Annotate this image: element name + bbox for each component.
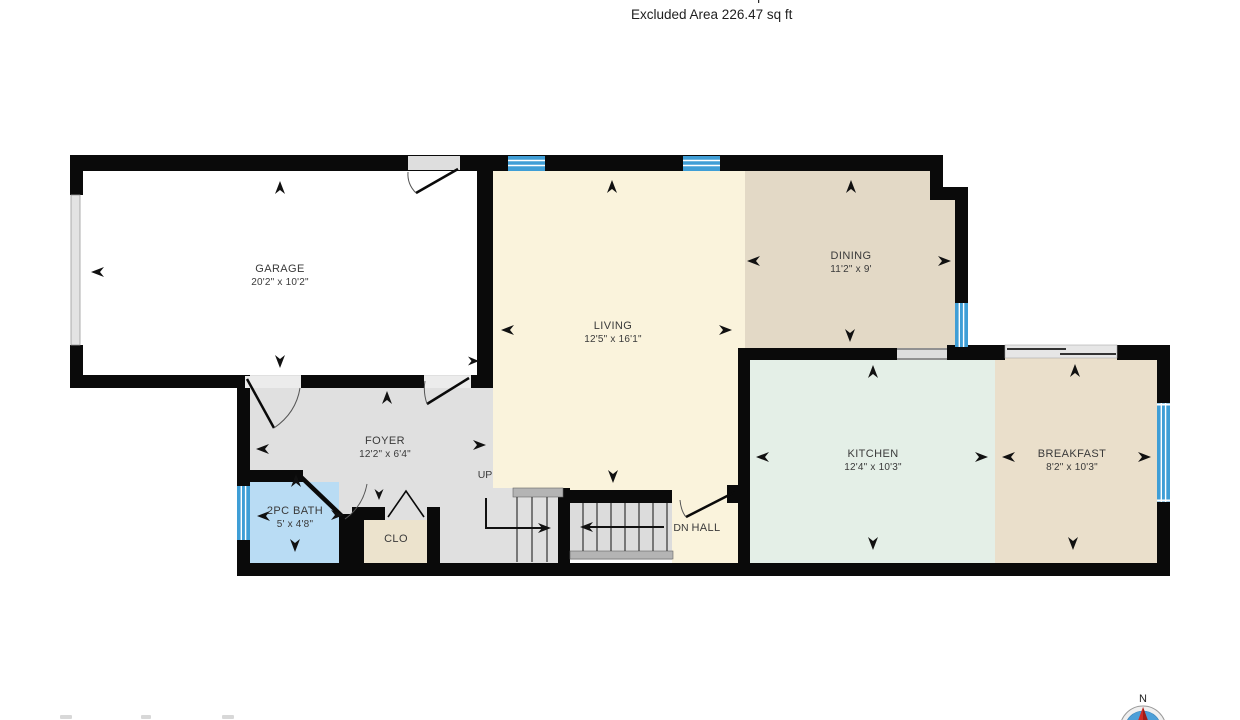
compass-north-label: N bbox=[1139, 693, 1147, 705]
foyer-dims: 12'2" x 6'4" bbox=[359, 449, 411, 460]
living-window bbox=[683, 156, 720, 171]
bath-dims: 5' x 4'8" bbox=[277, 519, 314, 530]
hall-label: HALL bbox=[691, 522, 720, 534]
foyer-label: FOYER bbox=[365, 435, 405, 447]
breakfast-label: BREAKFAST bbox=[1038, 448, 1106, 460]
dining-label: DINING bbox=[831, 250, 872, 262]
dining-dims: 11'2" x 9' bbox=[830, 264, 871, 275]
floor-plan-page: Interior Area 672.8 sq ft Excluded Area … bbox=[0, 0, 1240, 720]
living-label: LIVING bbox=[594, 320, 632, 332]
down-label: DN bbox=[673, 522, 688, 534]
breakfast-dims: 8'2" x 10'3" bbox=[1046, 462, 1098, 473]
garage-label: GARAGE bbox=[255, 263, 304, 275]
closet-label: CLO bbox=[384, 533, 408, 545]
kitchen-label: KITCHEN bbox=[847, 448, 898, 460]
living-dims: 12'5" x 16'1" bbox=[584, 334, 642, 345]
garage-door bbox=[71, 195, 80, 345]
sliding-door bbox=[1005, 345, 1117, 358]
garage-dims: 20'2" x 10'2" bbox=[251, 277, 309, 288]
living-window bbox=[508, 156, 545, 171]
dining-window bbox=[955, 303, 968, 347]
breakfast-window bbox=[1157, 403, 1170, 502]
bath-window bbox=[237, 486, 250, 540]
floor-plan-drawing: GARAGE 20'2" x 10'2" LIVING 12'5" x 16'1… bbox=[0, 0, 1240, 720]
bath-label: 2PC BATH bbox=[267, 505, 323, 517]
up-label: UP bbox=[478, 469, 493, 481]
pass-through-opening bbox=[897, 348, 947, 360]
kitchen-dims: 12'4" x 10'3" bbox=[844, 462, 902, 473]
compass: N bbox=[1120, 693, 1166, 720]
